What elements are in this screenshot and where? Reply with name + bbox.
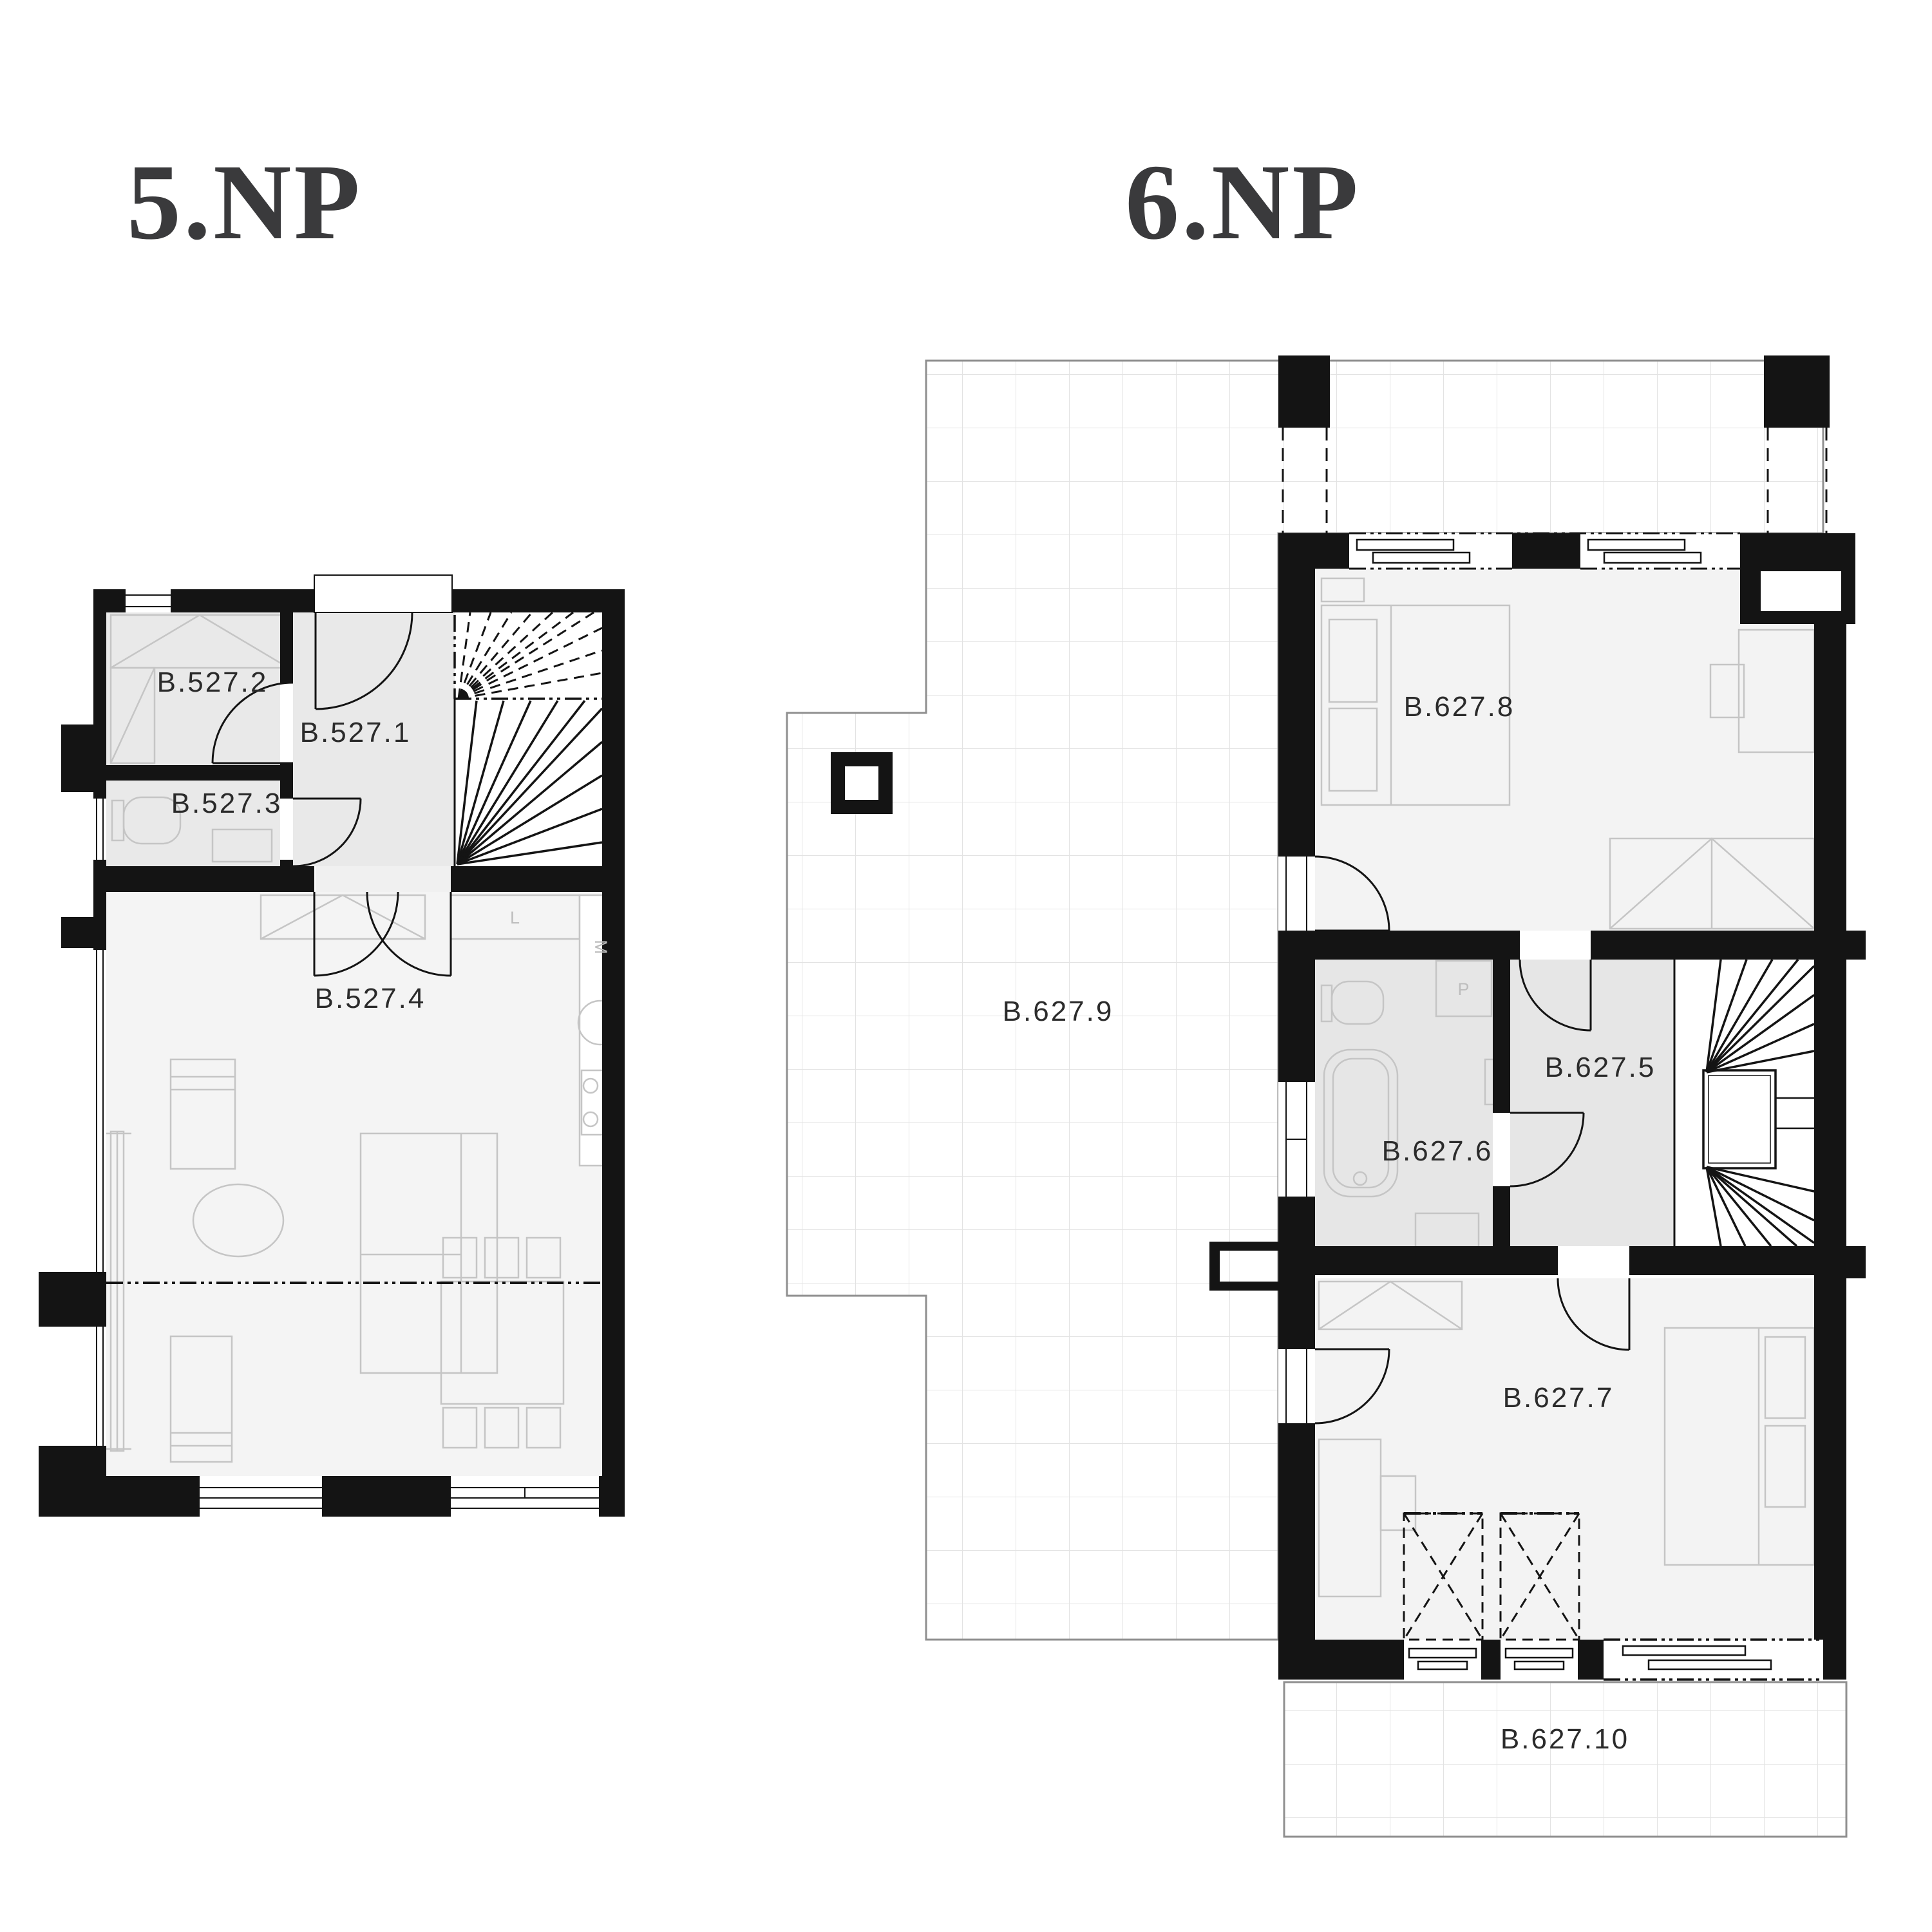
wall [1814,624,1846,1680]
shaft-edge [1209,1242,1278,1251]
wall [451,866,602,892]
entrance-recess [314,575,452,612]
wall-pier [39,1272,93,1327]
terrace-chimney [831,752,893,814]
washing-machine-tag: P [1457,980,1470,999]
wall [1315,931,1520,960]
wall [1629,1246,1814,1275]
wall [1278,931,1315,1082]
room-b627-6 [1315,960,1493,1246]
corner-shaft [1761,571,1841,611]
window-sash [1588,540,1685,550]
doorway-threshold [316,866,451,892]
window [126,589,171,612]
wall [451,589,625,612]
window [200,1476,322,1517]
room-label-b627-5: B.627.5 [1545,1052,1656,1083]
floorplan-6np: B.627.5 B.627.6 B.627.7 B.627.8 B.627.9 … [787,355,1866,1837]
floorplan-5np: B.527.1 B.527.2 B.527.3 B.527.4 L M [39,575,625,1517]
pillar [1278,355,1330,428]
wall-nub [1846,1246,1866,1278]
wall [280,612,293,683]
chimney-inner [845,766,878,800]
wall [1823,1640,1846,1680]
south-windows [1404,1640,1823,1680]
window [1404,1640,1481,1680]
window-sash [1357,540,1454,550]
window-sash [1409,1649,1476,1658]
pillar [1764,355,1830,428]
wall-pier [61,724,106,792]
terrace-b627-10 [1284,1682,1846,1837]
wall [93,765,293,781]
window-sash [1515,1662,1564,1669]
terrace-door-opening [1278,1349,1315,1423]
wall-pier [61,917,106,948]
room-label-b527-4: B.527.4 [315,983,426,1014]
shaft-edge [1209,1242,1220,1291]
wall [93,1272,106,1327]
room-b627-7 [1315,1278,1814,1640]
room-label-b627-7: B.627.7 [1503,1382,1615,1414]
window [1501,1640,1578,1680]
appliance-tags-6np: P [1457,980,1470,999]
room-label-b527-3: B.527.3 [171,788,283,819]
wall-pier [39,1446,106,1517]
fridge-tag: L [510,908,520,927]
window-sash [1649,1660,1771,1669]
wall [1591,931,1814,960]
wall [1315,1246,1558,1275]
wall [599,1476,625,1517]
stair-core [1703,1070,1776,1168]
wall [1493,1186,1510,1246]
stair-upper-flight [459,612,602,699]
wall [1512,533,1580,569]
wall [171,589,316,612]
wall [1278,533,1315,857]
title-5np: 5.NP [127,142,363,262]
window [93,1327,106,1446]
room-b527-4 [106,892,602,1476]
window [93,799,106,860]
wall [1578,1640,1604,1680]
floor-titles: 5.NP 6.NP [127,142,1361,262]
wall [602,589,625,1517]
wall [1481,1640,1501,1680]
shaft-edge [1209,1282,1278,1291]
room-label-b627-8: B.627.8 [1404,691,1515,723]
window-sash [1623,1646,1745,1655]
room-label-b627-10: B.627.10 [1501,1723,1629,1755]
wall [1278,1640,1404,1680]
wall [280,860,293,866]
stair-lower-flight [457,701,602,864]
title-6np: 6.NP [1125,142,1361,262]
terrace-door-opening [1278,857,1315,931]
wall [1493,960,1510,1113]
dishwasher-tag: M [591,940,611,955]
wall [93,1476,200,1517]
room-label-b527-2: B.527.2 [157,667,269,698]
room-label-b627-9: B.627.9 [1003,996,1114,1027]
wall-nub [1846,931,1866,960]
room-label-b527-1: B.527.1 [300,717,412,748]
window [93,950,106,1272]
room-label-b627-6: B.627.6 [1382,1135,1493,1167]
window-sash [1604,553,1701,563]
window-sash [1373,553,1470,563]
wall [1278,1197,1315,1349]
floorplan-canvas: B.527.1 B.527.2 B.527.3 B.527.4 L M [0,0,1932,1932]
window-sash [1418,1662,1467,1669]
stairs-5np [455,612,602,866]
window-sash [1506,1649,1573,1658]
wall [322,1476,451,1517]
wall [93,866,314,892]
